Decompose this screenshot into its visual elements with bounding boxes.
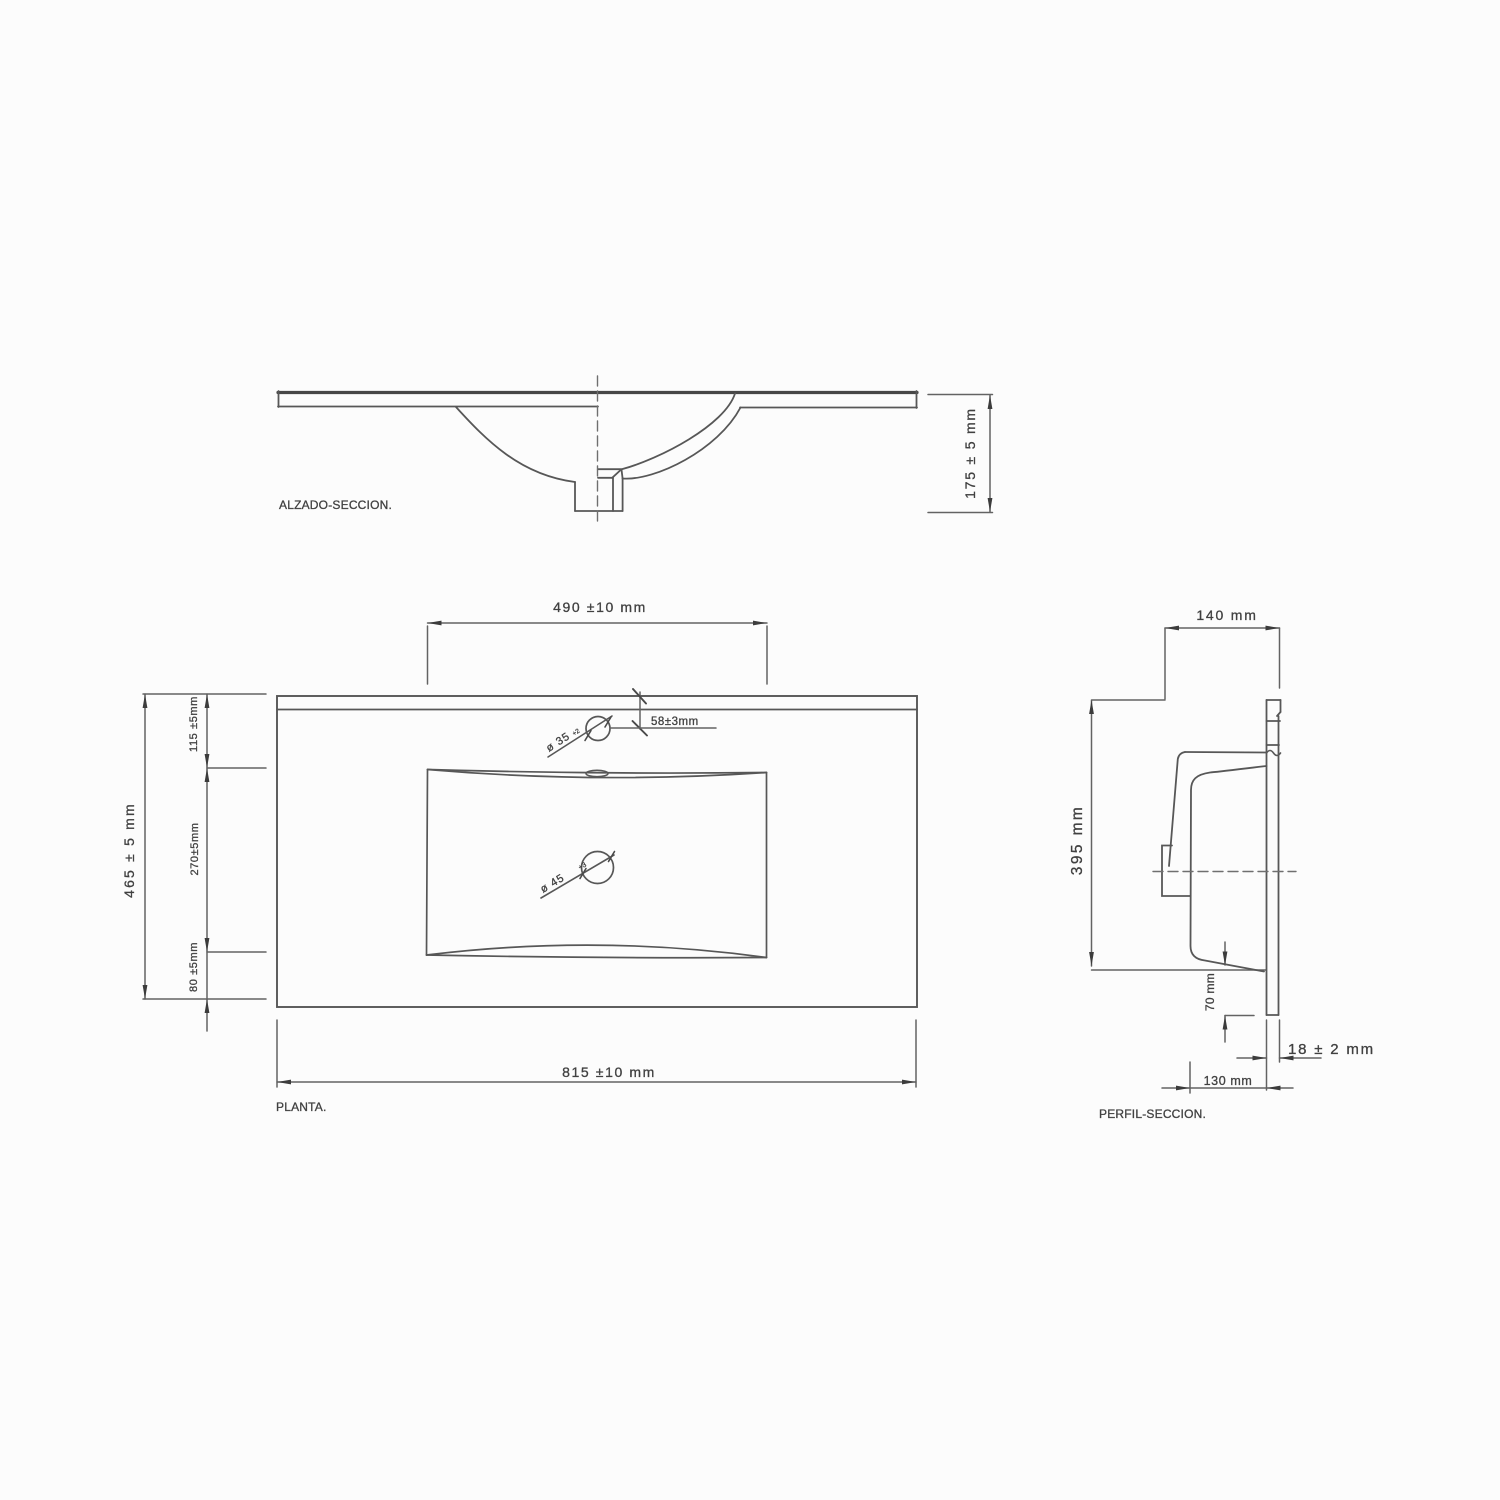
svg-text:465 ± 5 mm: 465 ± 5 mm (121, 802, 137, 898)
svg-text:ALZADO-SECCION.: ALZADO-SECCION. (279, 498, 392, 512)
svg-text:395 mm: 395 mm (1069, 805, 1086, 875)
svg-text:PERFIL-SECCION.: PERFIL-SECCION. (1099, 1107, 1206, 1121)
svg-text:80 ±5mm: 80 ±5mm (188, 942, 200, 992)
svg-text:18 ± 2 mm: 18 ± 2 mm (1288, 1041, 1375, 1058)
svg-text:815 ±10 mm: 815 ±10 mm (562, 1064, 656, 1080)
svg-text:70 mm: 70 mm (1203, 973, 1217, 1011)
svg-text:270±5mm: 270±5mm (189, 822, 201, 875)
svg-text:58±3mm: 58±3mm (651, 716, 699, 728)
svg-text:130 mm: 130 mm (1204, 1074, 1253, 1088)
svg-text:+3: +3 (577, 862, 588, 872)
svg-text:175 ± 5 mm: 175 ± 5 mm (962, 407, 978, 499)
svg-text:490 ±10 mm: 490 ±10 mm (553, 599, 647, 615)
svg-text:115 ±5mm: 115 ±5mm (188, 696, 200, 752)
svg-text:140 mm: 140 mm (1196, 607, 1257, 623)
svg-text:PLANTA.: PLANTA. (276, 1100, 327, 1114)
